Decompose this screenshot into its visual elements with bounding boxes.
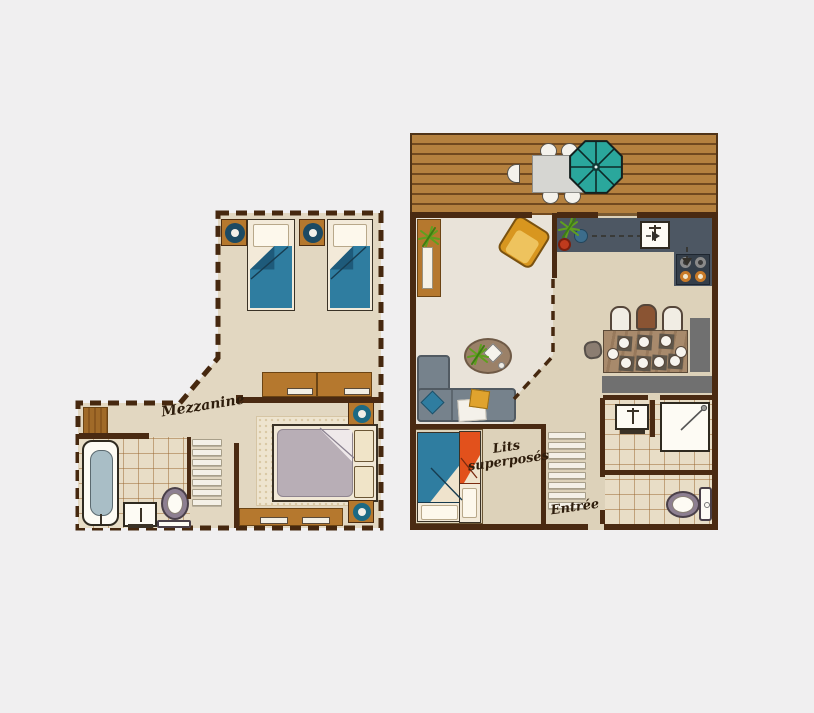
duvet-fold-dark [250,246,292,308]
wall-right [712,212,718,530]
plate [618,337,630,349]
stair-step [548,472,586,479]
wall-bathroom-top [660,395,712,400]
stair-step [192,489,222,496]
rug-dot [498,362,505,369]
mezzanine-staircase [192,439,222,506]
plate [607,348,619,360]
bed-pillow [354,466,374,498]
stair-step [548,462,586,469]
lamp-center [231,229,239,237]
wall-bunkroom-top [410,424,546,429]
low-dresser [239,508,343,526]
plate [620,357,632,369]
mezzanine-toilet-base [157,520,191,528]
plate [637,357,649,369]
bed-pillow [333,224,367,247]
stair-step [192,479,222,486]
burner [680,271,691,282]
burner [680,257,691,268]
lamp-center [358,508,366,516]
toilet-bowl [666,491,700,518]
dining-chair [636,304,657,330]
deck-chair [507,164,520,183]
burner [695,257,706,268]
bedside-table [221,219,247,246]
bathtub-basin [90,450,113,516]
plate [660,335,672,347]
twin-duvet [330,246,370,308]
dining-chair [662,306,683,332]
cooktop [676,254,710,285]
stair-step [548,492,586,499]
wall-top [557,212,598,218]
wall-top [410,212,532,218]
lamp-center [309,229,317,237]
stair-step [548,432,586,439]
flush-button [704,502,710,508]
bunk-pillow [462,488,477,518]
wall-bedroom [234,443,239,528]
desk-drawer [344,388,370,395]
bed-pillow [354,430,374,462]
sink-base [620,430,645,434]
wall-wc [603,470,712,475]
duvet-fold [278,430,352,496]
plate [653,356,665,368]
bath-faucet-icon [100,514,102,524]
lamp-center [358,410,366,418]
toilet-seat [672,496,694,513]
duvet-fold [418,433,462,502]
twin-bed [247,219,295,311]
stair-step [548,482,586,489]
twin-bed [327,219,373,311]
bathtub [82,440,119,526]
kitchen-sink [640,221,670,249]
bunk-pillow [421,505,458,520]
dining-chair [610,306,631,332]
faucet-icon [140,508,142,522]
sink-base [128,524,153,528]
floor-plan-canvas: Mezzanine Lits superposés Entrée [0,0,814,713]
vase [422,247,433,289]
wall-partition-stub [552,213,557,278]
window-sill [598,213,637,216]
wall-hall-stub [600,510,605,524]
dresser-drawer [260,517,288,524]
toilet-tank [699,487,712,521]
bedside-table [348,402,374,425]
desk [262,372,317,397]
double-duvet [277,429,353,497]
stair-step [192,459,222,466]
wall-bathroom-top [603,395,648,400]
cushion-yellow [469,389,490,409]
red-pot [558,238,571,251]
wall-bottom [410,524,588,530]
duvet-fold-dark [330,246,370,308]
faucet-icon [627,410,639,412]
kettle [574,229,588,243]
bed-pillow [253,224,289,247]
wall-top [637,212,718,218]
stair-step [192,449,222,456]
desk-drawer [287,388,313,395]
bunk-bed-blue [417,432,463,522]
stair-step [192,499,222,506]
plate [669,355,681,367]
plate [638,336,650,348]
dining-table [603,330,688,373]
bedside-table [299,219,325,246]
burner [695,271,706,282]
twin-duvet [250,246,292,308]
bunk-duvet-blue [418,433,462,503]
shower [660,402,710,452]
wall-bathroom [79,433,149,439]
bench [602,376,712,393]
stair-step [192,469,222,476]
stair-step [192,439,222,446]
wall-bathroom-inner [650,400,655,437]
wall-stairs [187,437,191,499]
faucet-icon [649,227,661,229]
wall-left [410,212,416,530]
mezzanine-toilet-bowl [161,487,189,520]
double-bed [272,424,378,502]
sideboard [690,318,710,372]
wall-hall [600,398,605,477]
deck-table [532,155,583,193]
dresser-drawer [302,517,330,524]
desk [317,372,372,397]
wall-desks [236,397,381,403]
bedside-table [348,500,374,523]
sofa-seam [451,390,453,420]
wall-bottom [604,524,718,530]
bathroom-sink [615,404,649,430]
toilet-seat [167,493,183,514]
